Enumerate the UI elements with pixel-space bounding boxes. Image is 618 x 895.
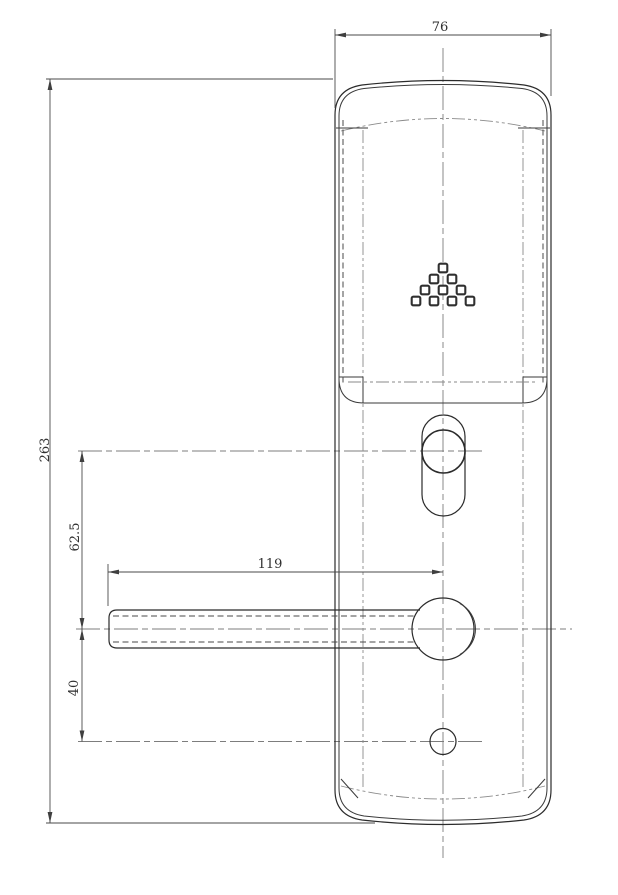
keypad-dot — [466, 297, 475, 306]
keypad-dot — [430, 275, 439, 284]
door-lock-front-view: 76 263 62.5 40 119 — [0, 0, 618, 895]
keypad-dot — [457, 286, 466, 295]
bottom-left-corner-tick — [341, 779, 358, 798]
keypad-dot — [448, 275, 457, 284]
centerlines — [76, 48, 572, 858]
keypad-dot — [421, 286, 430, 295]
dim-handle-to-keyhole: 40 — [67, 629, 84, 742]
bottom-right-corner-tick — [528, 779, 545, 798]
keypad-dot — [430, 297, 439, 306]
keypad-dot — [439, 286, 448, 295]
keypad-dot — [412, 297, 421, 306]
dim-handle-length: 119 — [108, 557, 443, 606]
cylinder-circle — [422, 430, 465, 473]
dim-label-overall-height: 263 — [38, 438, 53, 463]
dim-label-handle-to-keyhole: 40 — [67, 680, 82, 697]
technical-drawing-canvas: 76 263 62.5 40 119 — [0, 0, 618, 895]
dim-label-handle-length: 119 — [258, 557, 283, 572]
dim-cylinder-to-handle: 62.5 — [68, 451, 84, 629]
euro-cylinder-keyhole — [422, 415, 465, 516]
dim-label-cylinder-to-handle: 62.5 — [68, 523, 83, 552]
dim-label-plate-width: 76 — [432, 20, 449, 35]
keypad-dot — [439, 264, 448, 273]
keypad-dot — [448, 297, 457, 306]
